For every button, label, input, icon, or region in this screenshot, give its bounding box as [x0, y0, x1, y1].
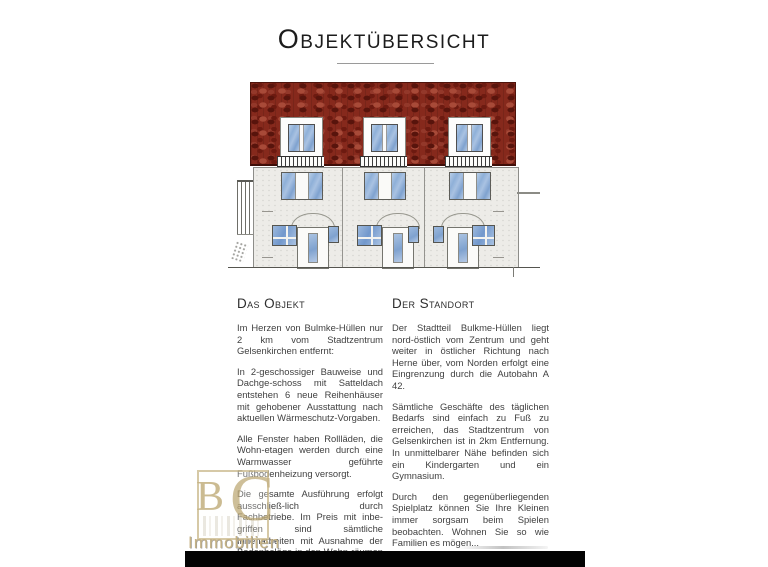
window-pane: [309, 173, 322, 199]
window-pane: [387, 125, 397, 151]
scan-smudge: [458, 546, 548, 549]
bc-immobilien-logo: B C: [197, 470, 269, 540]
party-wall-divider: [342, 167, 343, 267]
window-mullion: [463, 173, 476, 199]
upper-floor-window-3: [449, 172, 491, 200]
side-trellis: [237, 180, 253, 235]
dormer-glazing: [456, 124, 483, 152]
window-pane: [457, 125, 467, 151]
paragraph: Durch den gegenüberliegenden Spielplatz …: [392, 491, 549, 549]
dormer-railing-1: [277, 156, 324, 167]
dormer-railing-2: [360, 156, 407, 167]
plant-sketch: [230, 240, 248, 262]
measure-tick: [513, 267, 514, 277]
upper-floor-window-1: [281, 172, 323, 200]
annotation-dash: [493, 211, 504, 212]
dormer-glazing: [288, 124, 315, 152]
building-elevation-drawing: [228, 80, 540, 295]
narrow-window-3: [433, 226, 444, 243]
narrow-window-1: [328, 226, 339, 243]
section-heading-object: Das Objekt: [237, 296, 305, 311]
window-mullion: [295, 173, 308, 199]
door-glass-panel: [393, 233, 403, 263]
window-pane: [365, 173, 378, 199]
section-heading-location: Der Standort: [392, 296, 474, 311]
annotation-dash: [493, 257, 504, 258]
paragraph: Der Stadtteil Bulkme-Hüllen liegt nord-ö…: [392, 322, 549, 392]
dormer-railing-3: [445, 156, 492, 167]
ground-line: [228, 267, 540, 268]
logo-wordmark: Immobilien: [188, 533, 298, 553]
paragraph: In 2-geschossiger Bauweise und Dachge-sc…: [237, 366, 383, 424]
page-title: Objektübersicht: [0, 24, 768, 55]
ground-floor-window-2: [357, 225, 382, 246]
window-pane: [477, 173, 490, 199]
annotation-dash: [262, 211, 273, 212]
scan-black-bar: [185, 551, 585, 567]
ground-floor-window-3: [472, 225, 495, 246]
door-glass-panel: [458, 233, 468, 263]
logo-monogram-b: B: [196, 474, 224, 520]
window-pane: [472, 125, 482, 151]
title-divider: [337, 63, 434, 64]
window-pane: [450, 173, 463, 199]
document-page: Objektübersicht: [0, 0, 768, 567]
entrance-door-1: [297, 227, 329, 269]
window-pane: [392, 173, 405, 199]
window-pane: [372, 125, 382, 151]
paragraph: Im Herzen von Bulmke-Hüllen nur 2 km vom…: [237, 322, 383, 357]
location-description-column: Der Stadtteil Bulkme-Hüllen liegt nord-ö…: [392, 322, 549, 558]
narrow-window-2: [408, 226, 419, 243]
annotation-dash: [262, 257, 273, 258]
dormer-window-3: [448, 117, 491, 158]
dormer-window-1: [280, 117, 323, 158]
dormer-glazing: [371, 124, 398, 152]
party-wall-divider: [424, 167, 425, 267]
ground-floor-window-1: [272, 225, 297, 246]
paragraph: Sämtliche Geschäfte des täglichen Bedarf…: [392, 401, 549, 482]
window-pane: [304, 125, 314, 151]
window-pane: [282, 173, 295, 199]
door-glass-panel: [308, 233, 318, 263]
dormer-window-2: [363, 117, 406, 158]
window-pane: [289, 125, 299, 151]
upper-floor-window-2: [364, 172, 406, 200]
side-wall-line: [517, 192, 540, 194]
window-mullion: [378, 173, 391, 199]
